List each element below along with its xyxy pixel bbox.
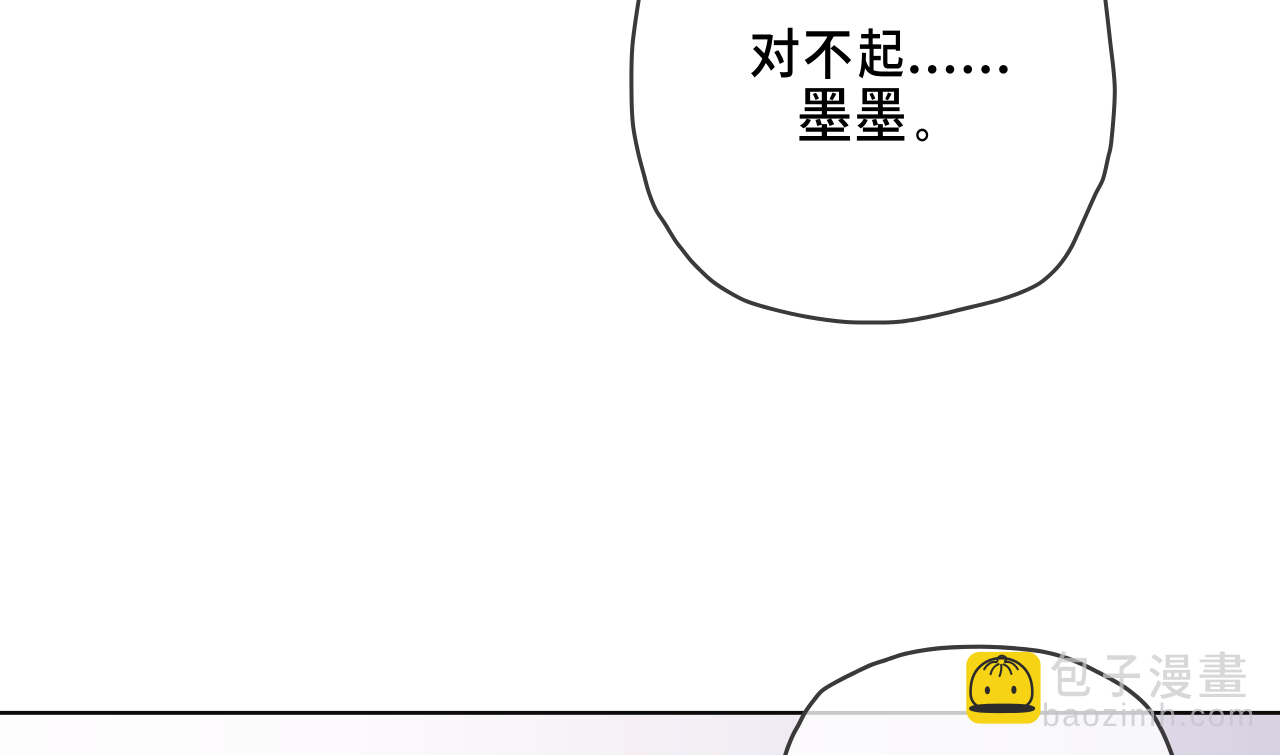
svg-text:baozimh.com: baozimh.com — [1042, 697, 1257, 733]
